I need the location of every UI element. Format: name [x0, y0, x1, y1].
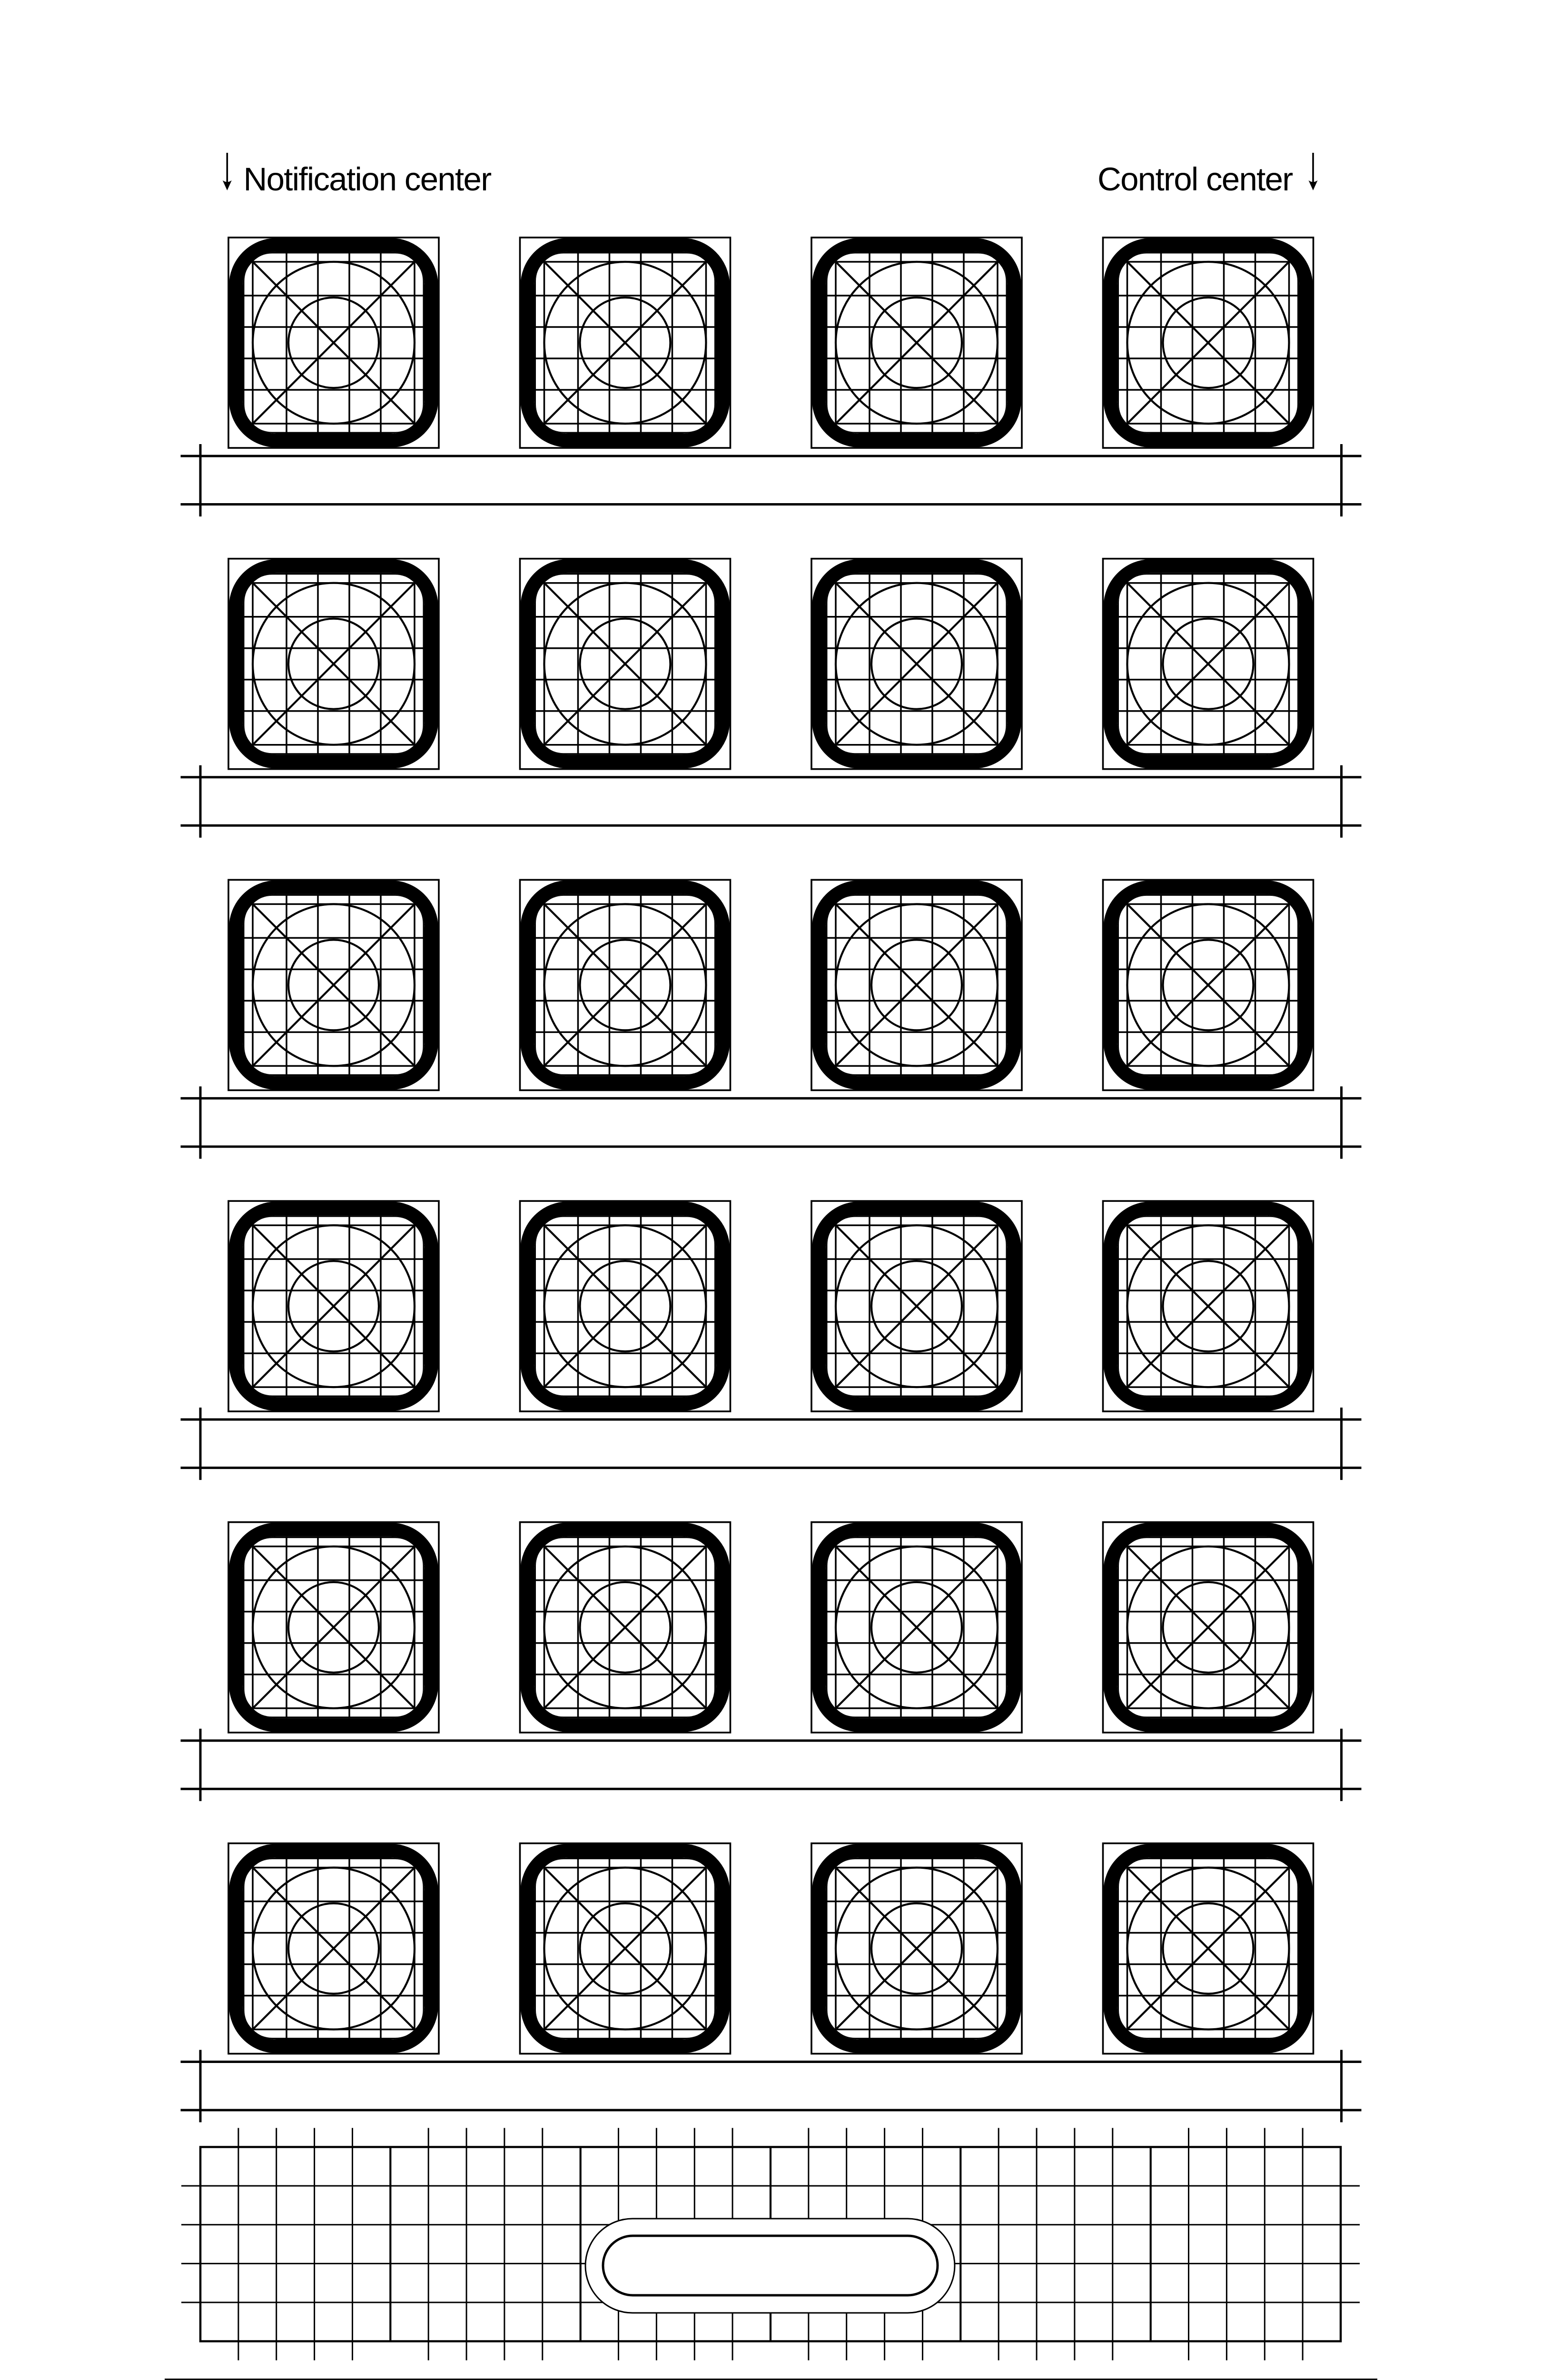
- svg-text:Control center: Control center: [1097, 161, 1293, 198]
- svg-text:Notification center: Notification center: [244, 161, 492, 198]
